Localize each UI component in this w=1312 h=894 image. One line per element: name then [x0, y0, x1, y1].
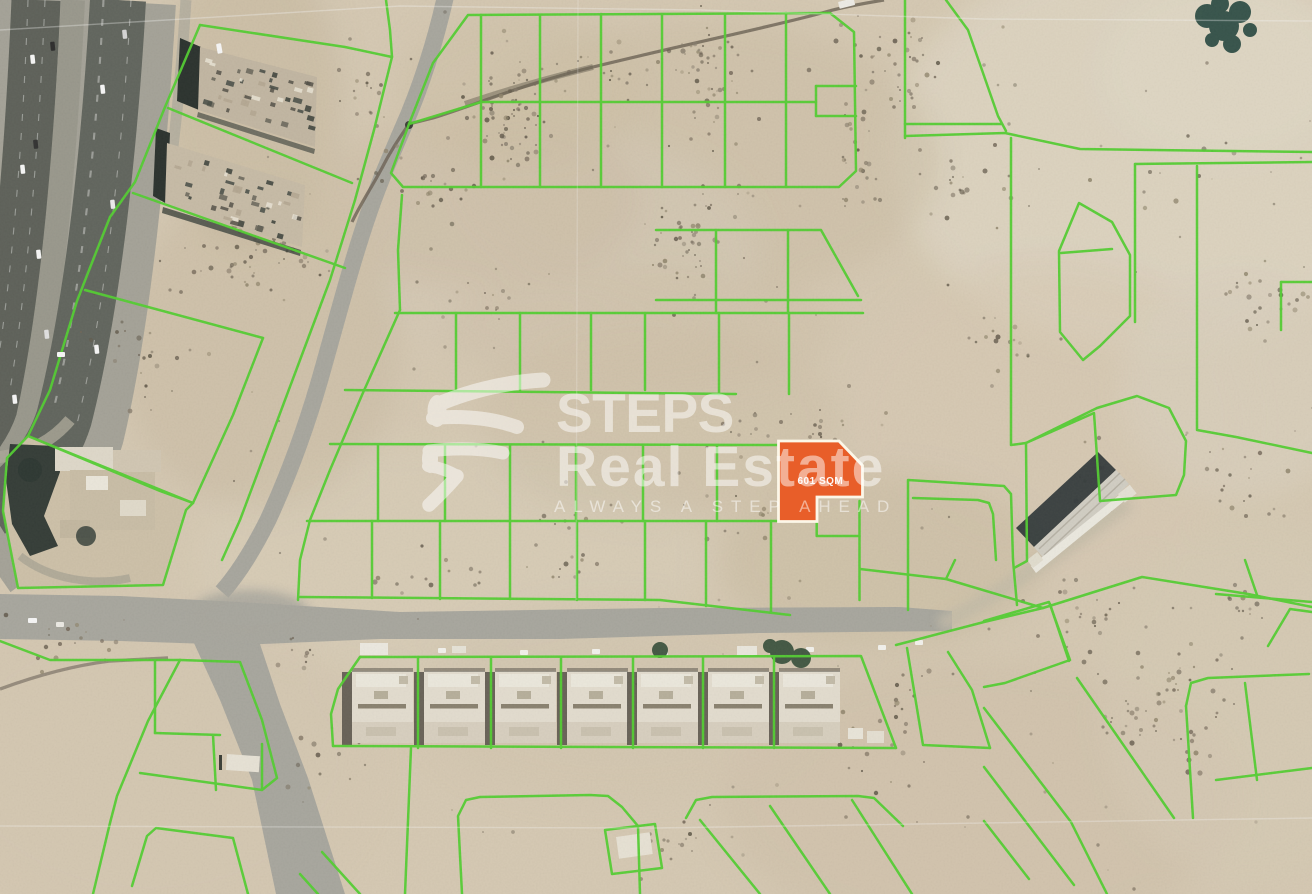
svg-text:Real Estate: Real Estate: [556, 435, 885, 499]
svg-text:601 SQM: 601 SQM: [798, 476, 844, 487]
svg-text:ALWAYS A STEP AHEAD: ALWAYS A STEP AHEAD: [554, 497, 897, 516]
